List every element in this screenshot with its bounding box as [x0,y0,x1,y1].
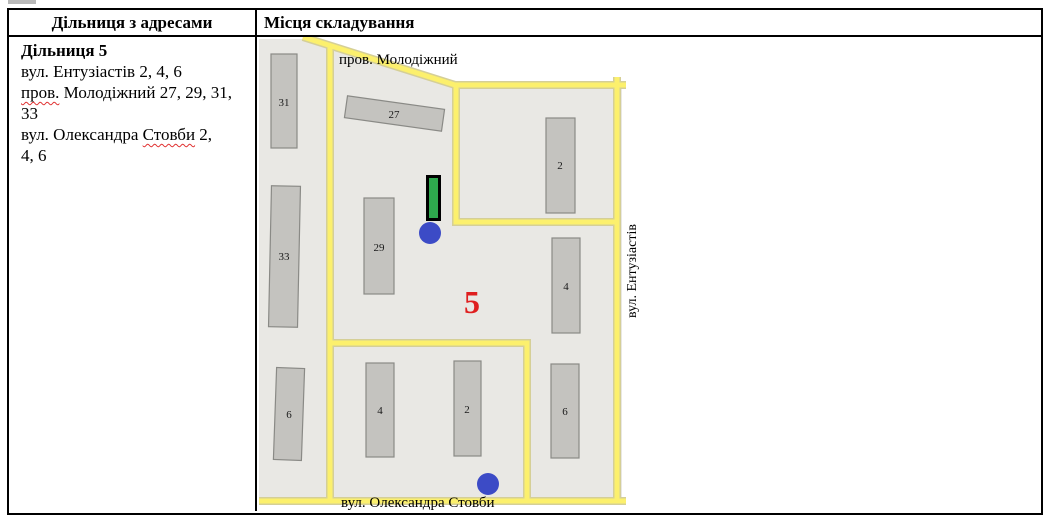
building-label: 2 [557,160,563,172]
address-line: 4, 6 [21,145,251,166]
building-label: 27 [389,109,401,121]
building-label: 6 [562,406,568,418]
table-body-row: Дільниця 5 вул. Ентузіастів 2, 4, 6 пров… [9,37,1041,511]
header-cell-district: Дільниця з адресами [9,10,257,35]
container-marker-north [419,222,441,244]
street-label-stovby: вул. Олександра Стовби [341,495,495,511]
address-cell: Дільниця 5 вул. Ентузіастів 2, 4, 6 пров… [9,37,257,511]
street-label-entuziastiv: вул. Ентузіастів [625,224,640,318]
building-label: 29 [374,242,386,254]
district-map: 31 27 2 33 29 4 6 4 2 6 пров. Молодіжний… [259,37,646,511]
address-line: вул. Олександра Стовби 2, [21,124,251,145]
address-block: Дільниця 5 вул. Ентузіастів 2, 4, 6 пров… [9,37,255,166]
street-label-molodizhnyi: пров. Молодіжний [339,52,458,68]
district-number-label: 5 [464,284,480,320]
building-label: 4 [377,405,383,417]
building-label: 31 [279,97,290,109]
district-table: Дільниця з адресами Місця складування Ді… [7,8,1043,515]
address-line: пров. Молодіжний 27, 29, 31, [21,82,251,103]
district-title: Дільниця 5 [21,40,251,61]
building-label: 6 [286,409,292,421]
table-header-row: Дільниця з адресами Місця складування [9,10,1041,37]
document-page: Дільниця з адресами Місця складування Ді… [0,0,1052,522]
address-line: вул. Ентузіастів 2, 4, 6 [21,61,251,82]
map-cell: 31 27 2 33 29 4 6 4 2 6 пров. Молодіжний… [257,37,1041,511]
storage-site-marker [428,177,440,220]
building-label: 33 [279,251,291,263]
container-marker-south [477,473,499,495]
scan-artifact [8,0,36,4]
address-line: 33 [21,103,251,124]
building-label: 4 [563,281,569,293]
building-label: 2 [464,404,470,416]
header-cell-storage: Місця складування [257,10,1041,35]
